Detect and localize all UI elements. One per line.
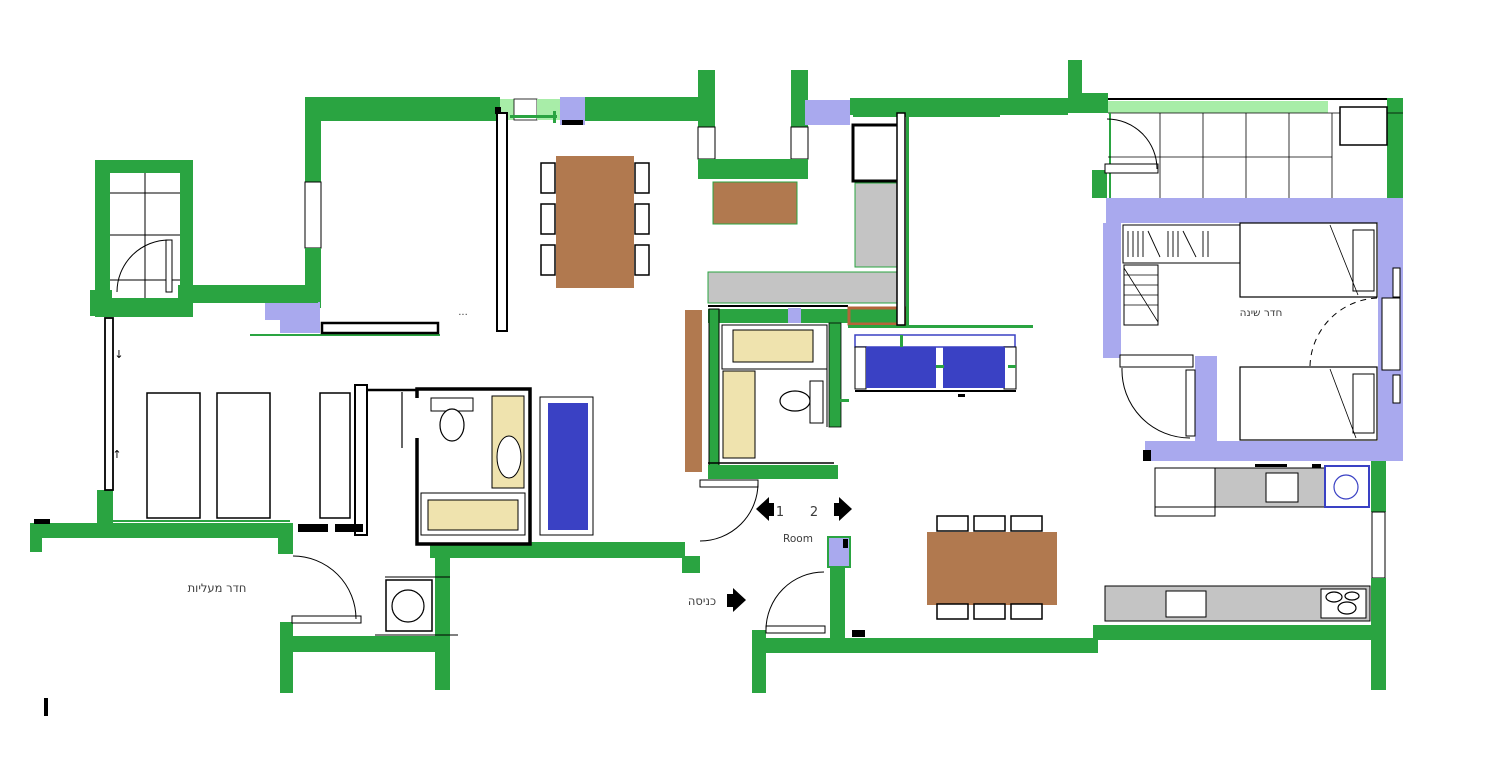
vanity-sink — [497, 436, 521, 478]
bath2-toilet-bowl — [780, 391, 810, 411]
window-balcony-right — [791, 127, 808, 159]
label-entrance: כניסה — [688, 594, 716, 608]
chair — [1011, 516, 1042, 531]
window-bedroom-3 — [1393, 375, 1400, 403]
mark-black-corner — [1143, 450, 1151, 461]
wall-bath2-left — [709, 309, 719, 467]
wall-kitchen-bottom — [1093, 625, 1386, 640]
tick-green-top — [553, 111, 556, 123]
terrace-door-arc — [1107, 119, 1157, 169]
chair — [974, 604, 1005, 619]
column-bath2-lavender — [788, 308, 801, 323]
chair — [541, 245, 555, 275]
wall-leftroom-endblock — [278, 523, 293, 554]
bedroom-door-leaf — [1186, 370, 1195, 436]
kitchen-cabinet-ledge — [1155, 507, 1215, 516]
sofa-cushion — [943, 347, 1005, 388]
wall-bedroom-left — [1103, 223, 1121, 358]
arrow-door1-stem — [769, 503, 774, 516]
kitchen-sink-square — [1266, 473, 1298, 502]
bedroom-door-arc — [1122, 368, 1190, 438]
wall-leftroom-bottom — [30, 523, 293, 538]
dining-table-2 — [927, 532, 1057, 605]
label-door-1: 1 — [776, 505, 784, 520]
wall-living-left-a — [305, 98, 321, 182]
dining-table-1 — [556, 156, 634, 288]
wall-bath2-top-a — [708, 309, 788, 323]
closet — [1123, 225, 1240, 263]
arrow-down-icon: ↓ — [114, 348, 123, 361]
bath2-vanity-side — [723, 371, 755, 458]
washing-machine — [386, 580, 432, 631]
bed-pillow — [1353, 230, 1374, 291]
mark-black — [1312, 464, 1321, 468]
entrance-door-leaf — [766, 626, 825, 633]
kitchen-cabinet — [1155, 468, 1215, 507]
inner-line-leftroom-top — [112, 301, 318, 303]
chair — [635, 204, 649, 234]
mark-black — [34, 519, 50, 524]
inner-line-living-top — [322, 114, 498, 116]
wall-bath2-right — [829, 323, 841, 427]
chair — [937, 604, 968, 619]
room-door-leaf — [700, 480, 758, 487]
tick-green-sofa — [936, 365, 944, 368]
arrow-up-icon: ↑ — [112, 448, 121, 461]
steps-lavender-2 — [280, 320, 320, 333]
wall-left-block — [90, 290, 112, 316]
mark-black — [852, 630, 865, 637]
arrow-door2-icon — [839, 497, 852, 521]
steps-lavender-1 — [265, 302, 320, 320]
room-door-arc — [700, 483, 758, 541]
chair — [937, 516, 968, 531]
arrow-door1-icon — [756, 497, 769, 521]
mark-black — [1255, 464, 1287, 467]
wall-living-top-1 — [305, 97, 500, 121]
leftroom-door-arc — [293, 556, 356, 619]
window-kitchen — [1372, 512, 1385, 578]
wall-bedroom-door-seg — [1195, 356, 1217, 443]
floor-plan: ↓↑···חדר מעליותכניסהחדר שינהRoom12 — [0, 0, 1492, 763]
bath2-vanity-top — [733, 330, 813, 362]
mark-black — [44, 698, 48, 716]
chair — [541, 163, 555, 193]
label-room: Room — [783, 533, 813, 545]
wall-seg-black — [298, 524, 328, 532]
elevator-cab — [320, 393, 350, 518]
label-bedroom: חדר שינה — [1240, 307, 1283, 319]
wall-bottom-2 — [293, 636, 438, 652]
bed-pillow — [1353, 374, 1374, 433]
wall-leftroom-right-black — [355, 385, 367, 535]
wall-seg-black — [335, 524, 363, 532]
bedroom-door-lintel — [1120, 355, 1193, 367]
chair — [1011, 604, 1042, 619]
terrace-door-leaf — [1105, 164, 1158, 173]
shower-tub — [548, 403, 588, 530]
balcony-table — [713, 182, 797, 224]
mark-black — [562, 120, 583, 125]
inner-line-sofa-top — [848, 325, 1033, 328]
window-bedroom-1 — [1382, 298, 1400, 370]
chair — [974, 516, 1005, 531]
entrance-door-arc — [766, 572, 824, 630]
terrace-left-line — [1109, 113, 1111, 198]
wall-leftroom-block — [97, 490, 113, 523]
chair — [635, 163, 649, 193]
vanity-bottom — [428, 500, 518, 530]
elevator-cab — [147, 393, 200, 518]
inner-line-leftroom-bottom — [112, 520, 290, 522]
mark-black — [958, 394, 965, 397]
column-lavender-right — [805, 100, 850, 125]
window-balcony-left — [698, 127, 715, 159]
wall-terrace-left-stub — [1092, 170, 1107, 198]
window-terrace-band — [1108, 101, 1328, 113]
sofa-cushion — [866, 347, 936, 388]
elevator-cab — [217, 393, 270, 518]
wall-vertical-mid — [435, 540, 450, 690]
wall-bedroom-bottom — [1145, 441, 1403, 461]
inner-line-counterwall — [906, 113, 909, 325]
kitchen-sink-unit — [1325, 466, 1369, 507]
terrace-niche — [1340, 107, 1387, 145]
arrow-door2-stem — [834, 503, 839, 516]
bath2-door-panel — [685, 310, 702, 472]
wall-living-left-b — [305, 248, 321, 308]
wall-top-right — [850, 98, 1068, 115]
label-door-2: 2 — [810, 505, 818, 520]
leftroom-door-leaf — [292, 616, 361, 623]
wall-corridor-step — [682, 556, 700, 573]
wall-cross-arm — [1068, 93, 1108, 113]
stair-door-leaf — [166, 240, 172, 292]
arrow-entrance-stem — [727, 594, 733, 607]
inner-line-top-2 — [510, 115, 557, 118]
wall-balcony-bottom — [698, 159, 808, 179]
floor-plan-canvas: ↓↑···חדר מעליותכניסהחדר שינהRoom12 — [0, 0, 1492, 763]
window-living-left — [305, 182, 321, 248]
wall-kitchen-right-a — [1371, 461, 1386, 512]
toilet-bowl — [440, 409, 464, 441]
tick-green-bath2 — [833, 399, 849, 402]
chair — [541, 204, 555, 234]
label-dots: ··· — [458, 310, 468, 321]
wall-door-vertical — [280, 622, 293, 693]
shelf-bench — [322, 323, 438, 333]
window-bedroom-2 — [1393, 268, 1400, 297]
wall-balcony-pillar-left — [698, 70, 715, 127]
wall-bath2-bottom — [708, 465, 838, 479]
tick-green-sofa — [900, 335, 903, 347]
wall-living-top-2 — [585, 97, 698, 121]
wall-double-black — [897, 113, 905, 325]
wall-bath2-top-b — [801, 309, 848, 323]
wall-room-vertical — [830, 567, 845, 640]
wall-leftroom-left-black — [105, 318, 113, 490]
wall-corridor — [178, 285, 321, 302]
arrow-entrance-icon — [733, 588, 746, 612]
wall-bottom-3 — [763, 638, 1098, 653]
wall-kitchen-right-b — [1371, 578, 1386, 690]
wall-bedroom-top — [1106, 198, 1403, 223]
sofa-back — [855, 335, 1015, 347]
balcony-door-arc-dashed — [1310, 298, 1378, 366]
label-elevator-room: חדר מעליות — [188, 581, 247, 595]
sofa-armrest — [855, 347, 866, 389]
counter-vertical — [855, 183, 897, 267]
bath2-toilet-tank — [810, 381, 823, 423]
chair — [635, 245, 649, 275]
wall-leftroom-stub — [30, 538, 42, 552]
inner-line-shelf — [250, 334, 440, 336]
divider-wall — [497, 113, 507, 331]
kitchen-sink-square-2 — [1166, 591, 1206, 617]
bathroom1-door-gap — [414, 398, 421, 438]
counter-horizontal — [708, 272, 897, 303]
mark-black — [843, 539, 848, 548]
cabinet-black-frame — [853, 125, 899, 181]
tick-green-sofa — [1008, 365, 1016, 368]
inner-line-top-right — [853, 115, 1000, 117]
mark-black — [495, 107, 501, 114]
